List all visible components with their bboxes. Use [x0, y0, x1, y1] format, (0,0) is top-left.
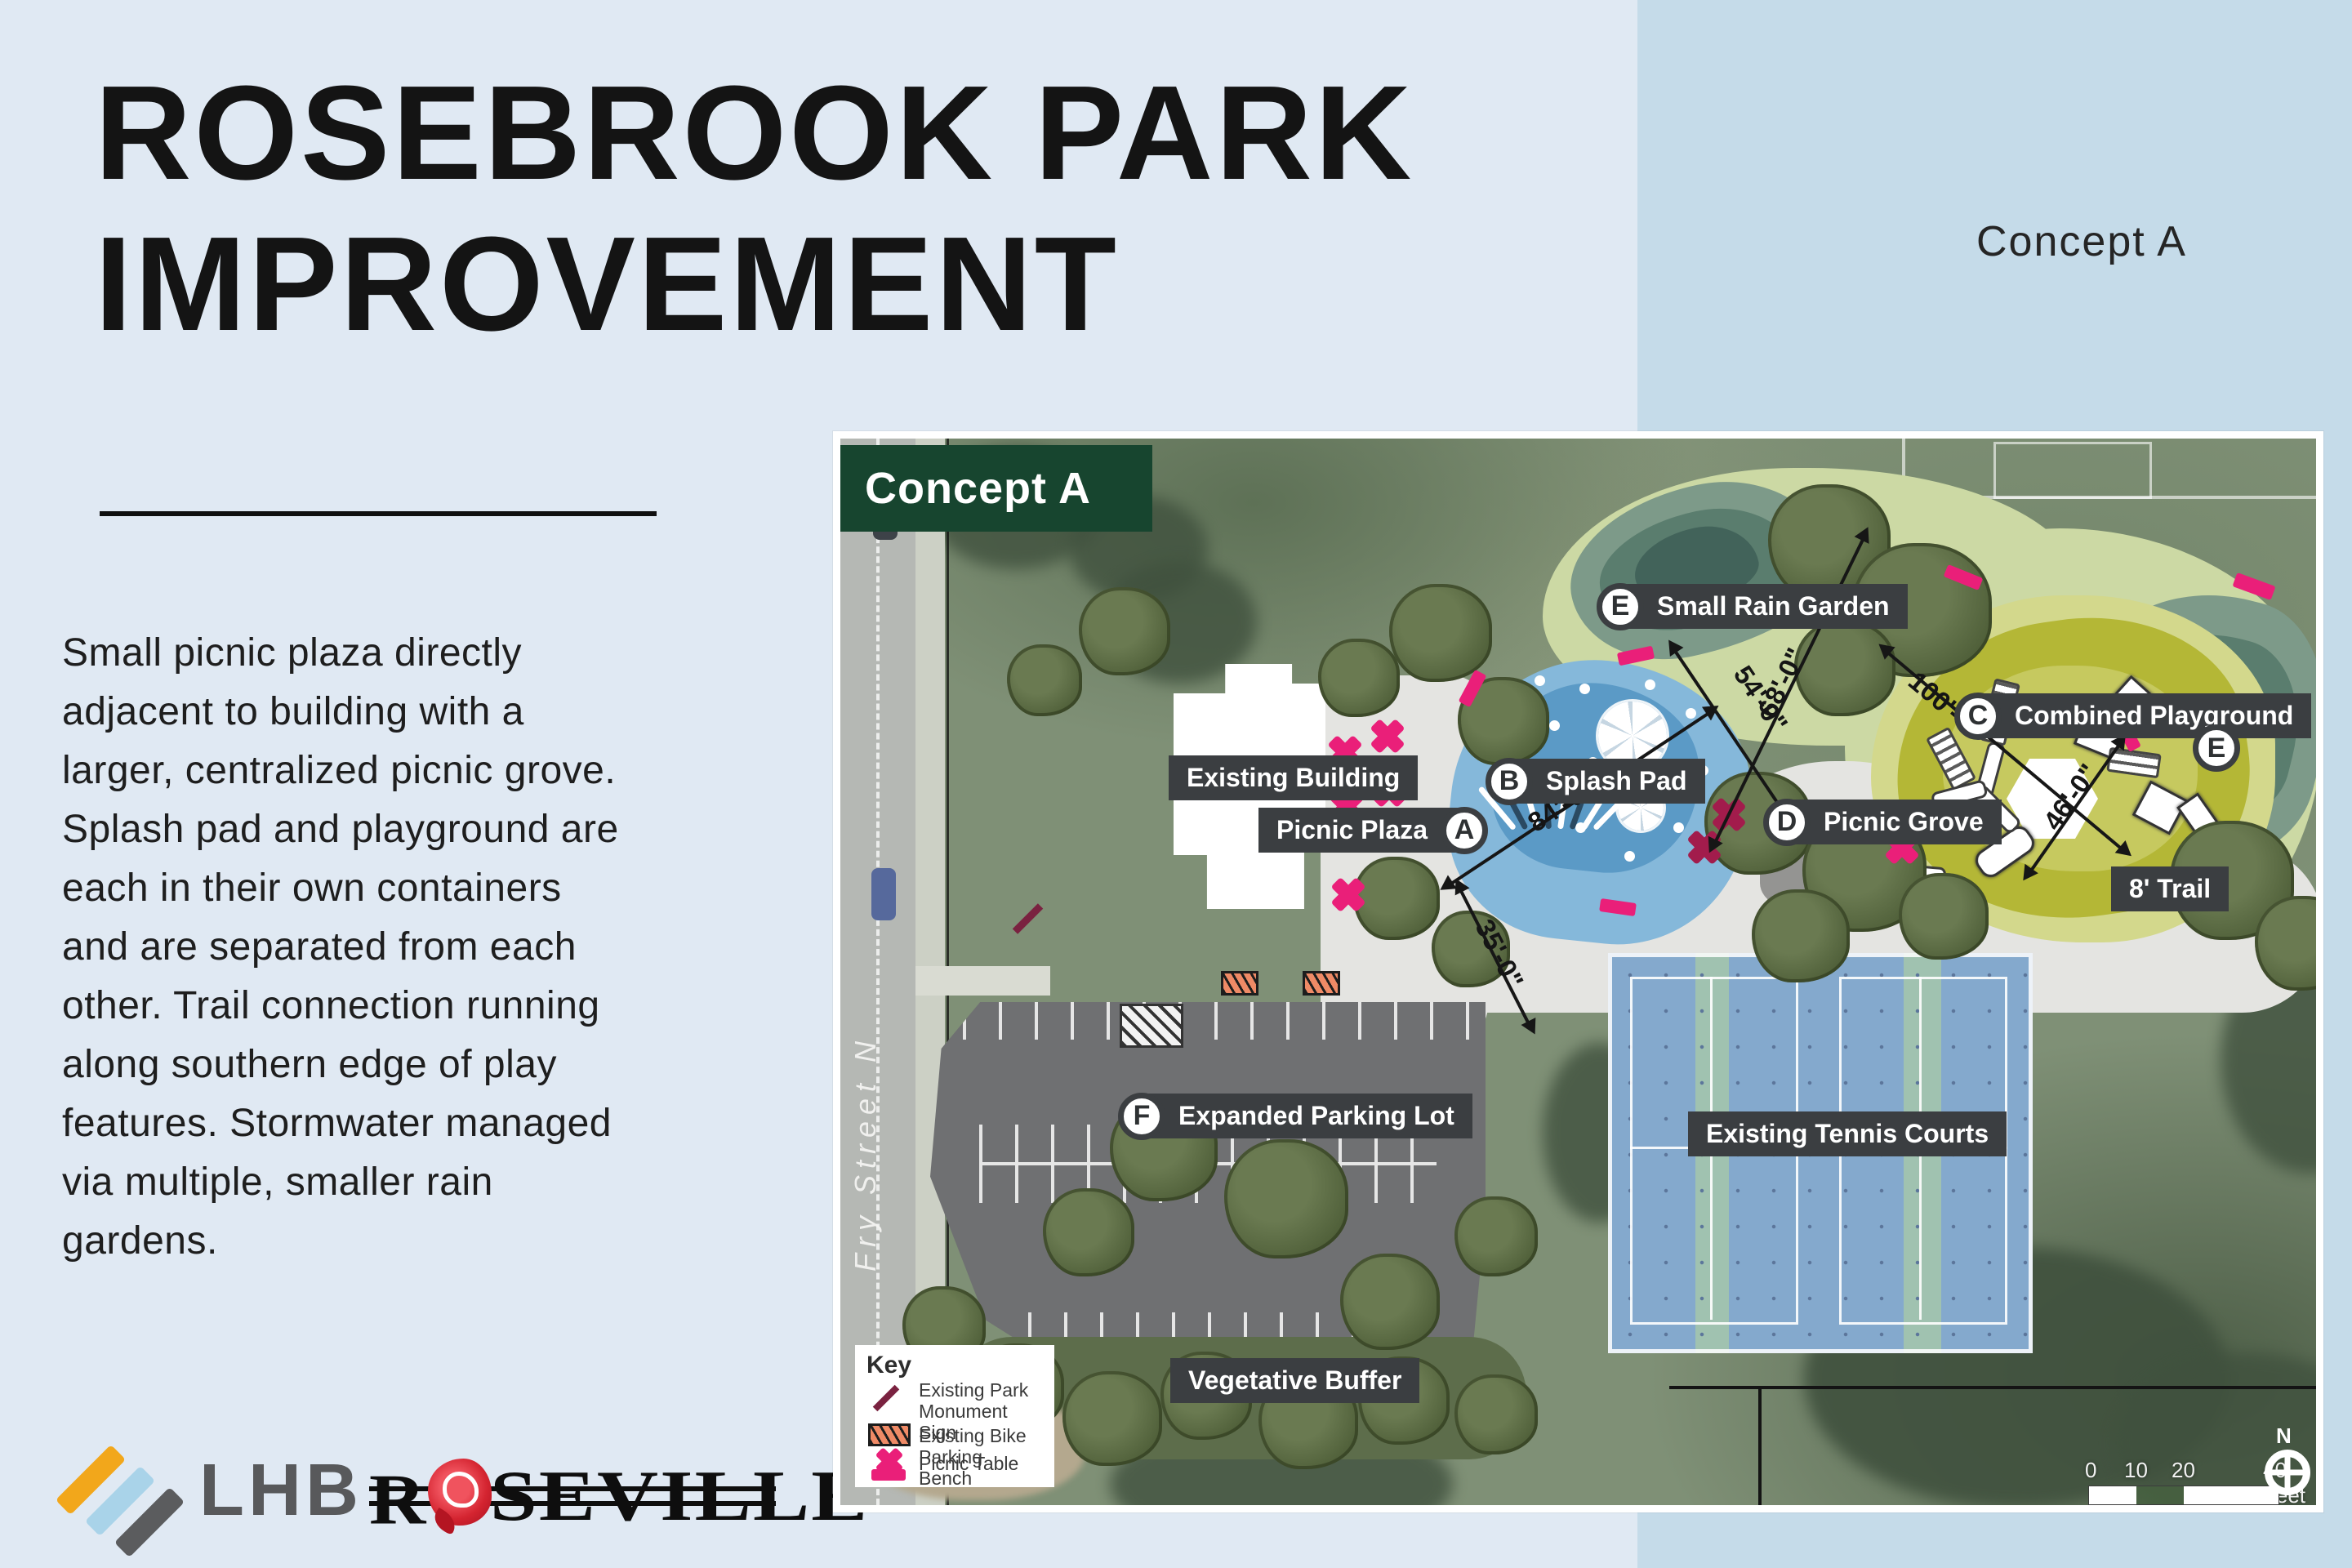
map-legend: Key Existing Park Monument Sign Existing…	[855, 1345, 1054, 1487]
tree	[1340, 1254, 1440, 1350]
site-plan-map: Fry Street N 912	[833, 431, 2323, 1512]
description-line: each in their own containers	[62, 859, 619, 918]
bike-parking-icon	[868, 1423, 911, 1446]
tree	[1389, 584, 1492, 682]
tree	[1062, 1371, 1162, 1466]
description-line: Small picnic plaza directly	[62, 624, 619, 683]
scale-bar	[2088, 1486, 2279, 1505]
label-text: Combined Playground	[2015, 701, 2293, 731]
monument-sign-icon	[873, 1385, 900, 1412]
description-line: along southern edge of play	[62, 1036, 619, 1094]
existing-building-label: Existing Building	[1169, 755, 1418, 800]
scale-tick: 0	[2085, 1458, 2096, 1483]
page-title-line1: ROSEBROOK PARK	[95, 57, 1414, 208]
park-entrance-drive	[915, 966, 1050, 996]
marker-circle: A	[1441, 807, 1488, 854]
scale-tick: 20	[2172, 1458, 2195, 1483]
legend-title: Key	[866, 1352, 911, 1379]
picnic-plaza-label: Picnic Plaza A	[1258, 808, 1470, 853]
tree	[1752, 889, 1850, 982]
parking-stalls	[963, 1002, 1486, 1040]
monument-sign-icon	[1013, 903, 1043, 933]
tree	[1318, 639, 1400, 717]
spray-jet	[1549, 720, 1560, 731]
tree	[1454, 1196, 1538, 1276]
description-line: other. Trail connection running	[62, 977, 619, 1036]
tree	[1043, 1188, 1134, 1276]
vegetative-buffer-label: Vegetative Buffer	[1170, 1358, 1419, 1403]
legend-label: Bench	[919, 1468, 972, 1489]
spray-jet	[1645, 679, 1655, 690]
label-text: Vegetative Buffer	[1188, 1365, 1401, 1396]
marker-circle: D	[1763, 799, 1811, 846]
tree	[1454, 1374, 1538, 1454]
marker-circle: B	[1486, 758, 1533, 805]
description-line: gardens.	[62, 1212, 619, 1271]
north-compass-icon	[2265, 1450, 2310, 1495]
page-title-line2: IMPROVEMENT	[95, 208, 1414, 359]
description-line: and are separated from each	[62, 918, 619, 977]
lhb-logo-text: LHB	[199, 1449, 363, 1533]
label-text: Expanded Parking Lot	[1178, 1101, 1454, 1131]
bike-parking-icon	[1303, 971, 1340, 996]
rose-icon	[428, 1459, 492, 1526]
description-line: larger, centralized picnic grove.	[62, 742, 619, 800]
bike-parking-icon	[1221, 971, 1258, 996]
soccer-field-line	[1993, 442, 2152, 499]
marker-circle: F	[1118, 1093, 1165, 1140]
description-line: adjacent to building with a	[62, 683, 619, 742]
spray-jet	[1535, 675, 1545, 686]
spray-jet	[1579, 684, 1590, 694]
description-line: via multiple, smaller rain	[62, 1153, 619, 1212]
concept-label: Concept A	[1976, 217, 2187, 266]
roseville-logo-r: R	[369, 1457, 425, 1540]
scale-tick: 10	[2124, 1458, 2148, 1483]
picnic-grove-label: D Picnic Grove	[1781, 800, 2002, 844]
label-text: 8' Trail	[2129, 874, 2211, 904]
tree	[1224, 1139, 1348, 1258]
trail-label: 8' Trail	[2111, 866, 2229, 911]
label-text: Picnic Plaza	[1276, 815, 1428, 845]
picnic-table-icon	[1330, 876, 1366, 912]
description-line: features. Stormwater managed	[62, 1094, 619, 1153]
label-text: Picnic Grove	[1824, 807, 1984, 837]
tree	[1079, 587, 1170, 675]
small-rain-garden-label: E Small Rain Garden	[1615, 584, 1908, 629]
picnic-table-icon	[1370, 718, 1405, 754]
rain-garden-marker: E	[2193, 724, 2240, 772]
property-line	[1669, 1386, 2316, 1389]
combined-playground-label: C Combined Playground	[1972, 693, 2311, 738]
tennis-courts-label: Existing Tennis Courts	[1688, 1111, 2007, 1156]
north-label: N	[2276, 1423, 2292, 1449]
description-paragraph: Small picnic plaza directly adjacent to …	[62, 624, 619, 1271]
marker-circle: C	[1954, 693, 2002, 740]
hatched-island	[1120, 1004, 1183, 1048]
description-line: Splash pad and playground are	[62, 800, 619, 859]
property-line	[1758, 1386, 1762, 1505]
spray-jet	[1624, 851, 1635, 862]
marker-circle: E	[1597, 583, 1644, 630]
label-text: Splash Pad	[1546, 766, 1687, 796]
roseville-logo-text: SEVILLE	[490, 1454, 870, 1537]
expanded-parking-lot-label: F Expanded Parking Lot	[1136, 1094, 1472, 1138]
label-text: Small Rain Garden	[1657, 591, 1890, 621]
page-title: ROSEBROOK PARK IMPROVEMENT	[95, 57, 1414, 360]
slide: { "slide": { "title_line1": "ROSEBROOK P…	[0, 0, 2352, 1568]
site-plan-aerial: Fry Street N 912	[840, 439, 2316, 1505]
spray-jet	[1686, 708, 1696, 719]
lhb-logo: LHB	[59, 1444, 353, 1534]
tree	[1007, 644, 1082, 716]
map-title: Concept A	[840, 445, 1152, 532]
spray-jet	[1673, 822, 1684, 833]
street-name-label: Fry Street N	[849, 880, 883, 1272]
label-text: Existing Building	[1187, 763, 1400, 793]
splash-pad-label: B Splash Pad	[1503, 759, 1705, 804]
bench-icon	[871, 1469, 906, 1481]
tree	[1899, 873, 1989, 960]
roseville-logo: R SEVILLE	[369, 1454, 777, 1535]
title-divider	[100, 511, 657, 516]
label-text: Existing Tennis Courts	[1706, 1119, 1989, 1149]
